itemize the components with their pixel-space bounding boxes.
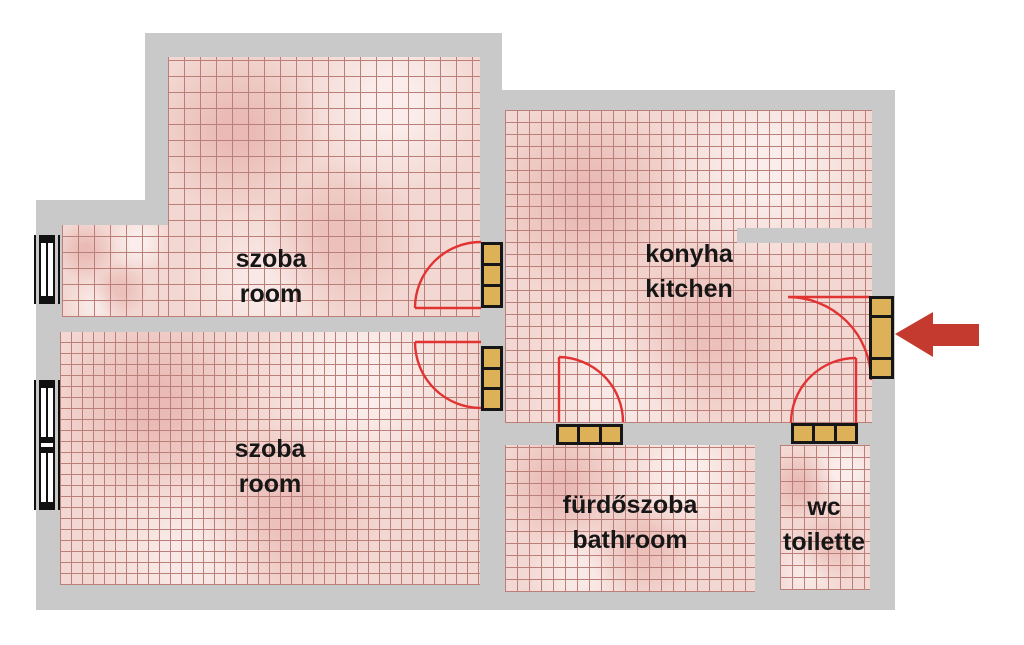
entrance-arrow-shape (895, 312, 979, 357)
entrance-arrow-icon (0, 0, 1024, 645)
floor-plan-canvas: szoba room szoba room konyha kitchen für… (0, 0, 1024, 645)
